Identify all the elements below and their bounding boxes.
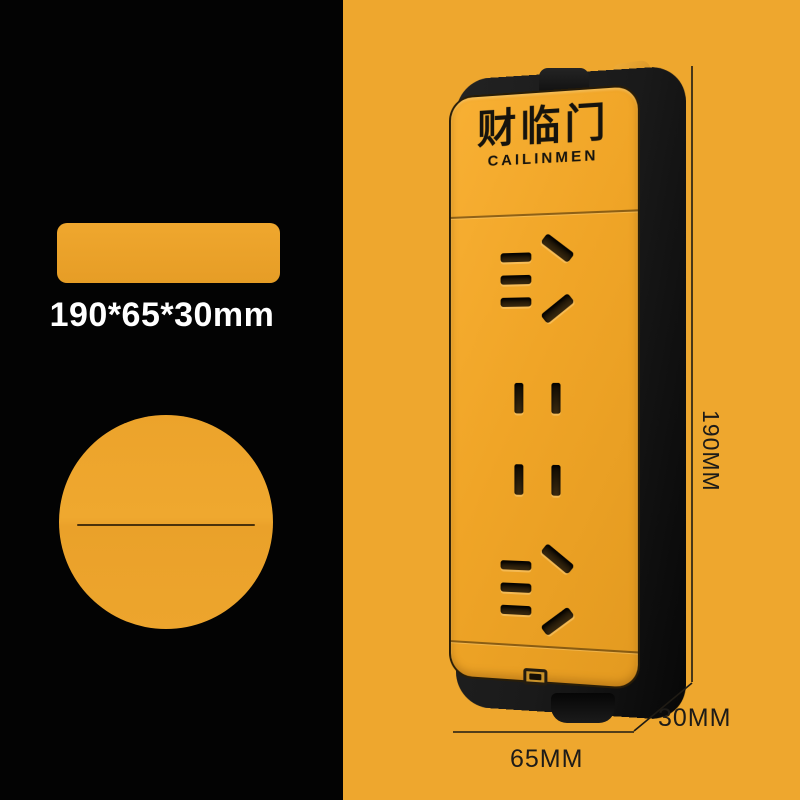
socket-slot — [501, 252, 532, 262]
socket-slot — [514, 383, 523, 414]
socket-slot — [541, 293, 575, 324]
face-seam-top — [451, 209, 638, 219]
socket-slot — [551, 465, 560, 496]
socket-slot — [541, 607, 575, 636]
socket-slot — [541, 233, 575, 263]
brand-label: 财临门 CAILINMEN — [451, 99, 638, 172]
product-size-caption: 190*65*30mm — [36, 296, 288, 335]
socket-slot — [551, 383, 560, 414]
socket-slot — [514, 464, 523, 495]
indicator-window — [523, 668, 547, 686]
socket-slot — [541, 543, 575, 574]
seam-line — [77, 524, 255, 526]
socket-slot — [501, 297, 532, 307]
width-dimension-label: 65MM — [510, 745, 583, 774]
height-dimension-label: 190MM — [697, 410, 724, 492]
material-detail-circle — [59, 415, 273, 629]
left-black-panel: 190*65*30mm — [0, 0, 343, 800]
power-strip-front-face: 财临门 CAILINMEN — [449, 84, 640, 690]
indicator-slot — [529, 673, 541, 680]
socket-slot — [501, 560, 532, 570]
socket-slot — [501, 275, 532, 285]
cable-loop — [551, 693, 615, 723]
color-swatch-rectangle — [57, 223, 280, 283]
face-seam-bottom — [451, 640, 638, 653]
depth-dimension-label: 30MM — [658, 704, 731, 733]
socket-slot — [501, 605, 532, 616]
socket-slot — [501, 582, 532, 593]
brand-name-chinese: 财临门 — [451, 99, 638, 153]
